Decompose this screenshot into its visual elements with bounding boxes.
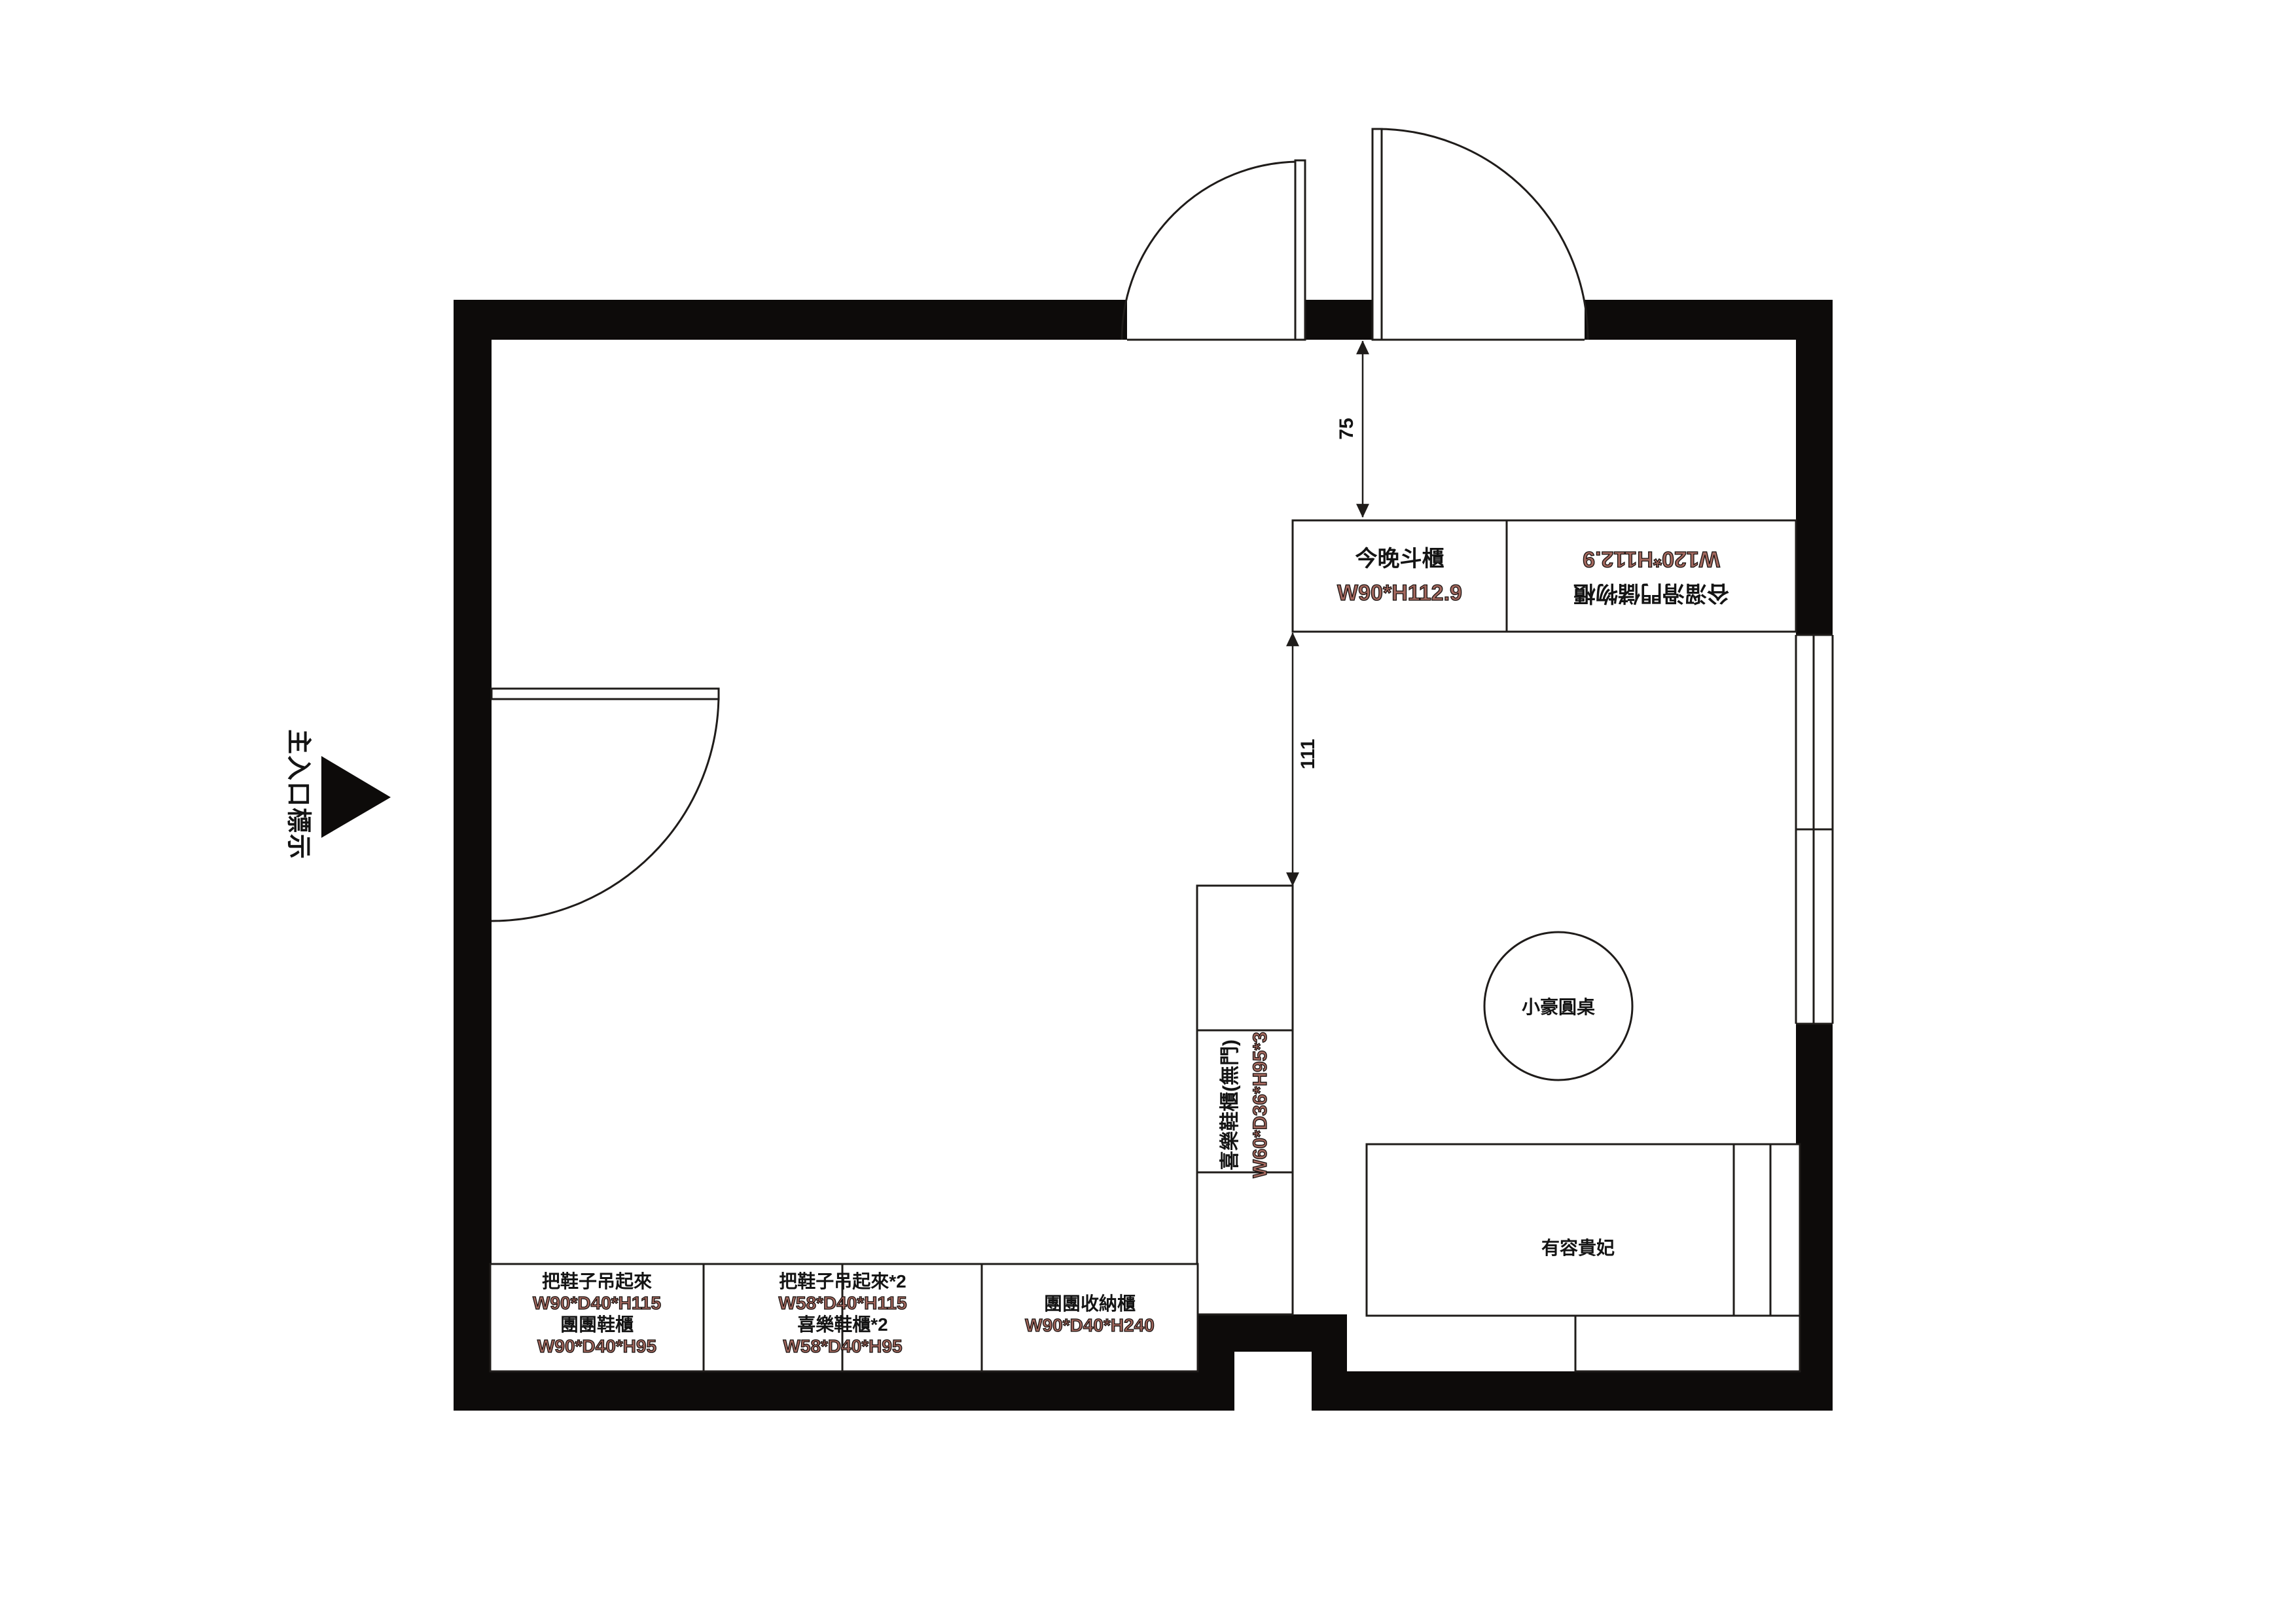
chaise-outline [1367,1144,1800,1316]
right-wall-upper [1796,300,1833,635]
dim-75-label: 75 [1336,418,1358,439]
dim-111-label: 111 [1297,739,1319,770]
cabinet-dims: W90*D40*H240 [1025,1314,1155,1336]
entrance-label: 主入口標示 [283,729,319,860]
entrance-arrow-icon [321,756,391,838]
cabinet-dims: W58*D40*H95 [783,1335,902,1357]
cabinet-name: 喜樂鞋櫃(無門) [1215,1032,1246,1178]
chaise-label: 有容貴妃 [1541,1234,1615,1260]
top-cabinet-left-label: 今晚斗櫃 W90*H112.9 [1293,520,1507,632]
floor-plan-drawing [0,0,2296,1624]
top-left-door-leaf [1295,160,1305,340]
cabinet-dims: W60*D36*H95*3 [1246,1032,1276,1178]
cabinet-dims: W90*D40*H95 [537,1335,656,1357]
left-door-arc [492,694,719,921]
top-right-door-leaf [1372,129,1382,340]
right-wall-lower [1796,1024,1833,1411]
passage-leg-right [1312,1348,1347,1375]
cabinet-dims: W120*H112.9 [1583,542,1720,576]
cabinet-name: 團團收納櫃 [1044,1293,1136,1314]
passage-stub [1196,1314,1347,1352]
top-wall-right [1585,300,1833,340]
top-cabinet-right-label: 谷溜滑門儲物櫃 W120*H112.9 [1507,520,1796,632]
bottom-cabinet-3-label: 團團收納櫃 W90*D40*H240 [982,1293,1198,1336]
dim-111-arrow-top [1287,634,1298,645]
left-wall [454,300,492,1411]
cabinet-name: 谷溜滑門儲物櫃 [1573,576,1729,610]
top-wall-left [454,300,1127,340]
cabinet-name: 把鞋子吊起來*2 [779,1271,906,1292]
bottom-wall-left [454,1371,1234,1411]
dim-111-arrow-bottom [1287,873,1298,884]
chaise-step [1575,1316,1800,1371]
passage-leg-left [1196,1348,1234,1375]
cabinet-dims: W90*D40*H115 [533,1292,661,1314]
bottom-cabinet-2-label: 把鞋子吊起來*2 W58*D40*H115 喜樂鞋櫃*2 W58*D40*H95 [704,1271,982,1357]
top-right-door-arc [1377,129,1588,340]
bottom-wall-right [1312,1371,1833,1411]
left-door-leaf [492,689,719,699]
top-wall-stub [1305,300,1372,340]
floor-plan: 主入口標示 75 111 今晚斗櫃 W90*H112.9 谷溜滑門儲物櫃 W12… [0,0,2296,1624]
cabinet-name: 今晚斗櫃 [1355,542,1444,576]
round-table-label: 小豪圓桌 [1522,993,1595,1019]
cabinet-name: 團團鞋櫃 [560,1314,634,1335]
side-cabinet-label: 喜樂鞋櫃(無門) W60*D36*H95*3 [1215,1032,1276,1178]
cabinet-dims: W90*H112.9 [1337,576,1462,610]
cabinet-name: 把鞋子吊起來 [542,1271,652,1292]
cabinet-name: 喜樂鞋櫃*2 [797,1314,888,1335]
bottom-cabinet-1-label: 把鞋子吊起來 W90*D40*H115 團團鞋櫃 W90*D40*H95 [490,1271,704,1357]
dim-75-arrow-top [1357,342,1368,353]
dim-75-arrow-bottom [1357,505,1368,516]
cabinet-dims: W58*D40*H115 [778,1292,906,1314]
top-left-door-arc [1122,162,1300,340]
